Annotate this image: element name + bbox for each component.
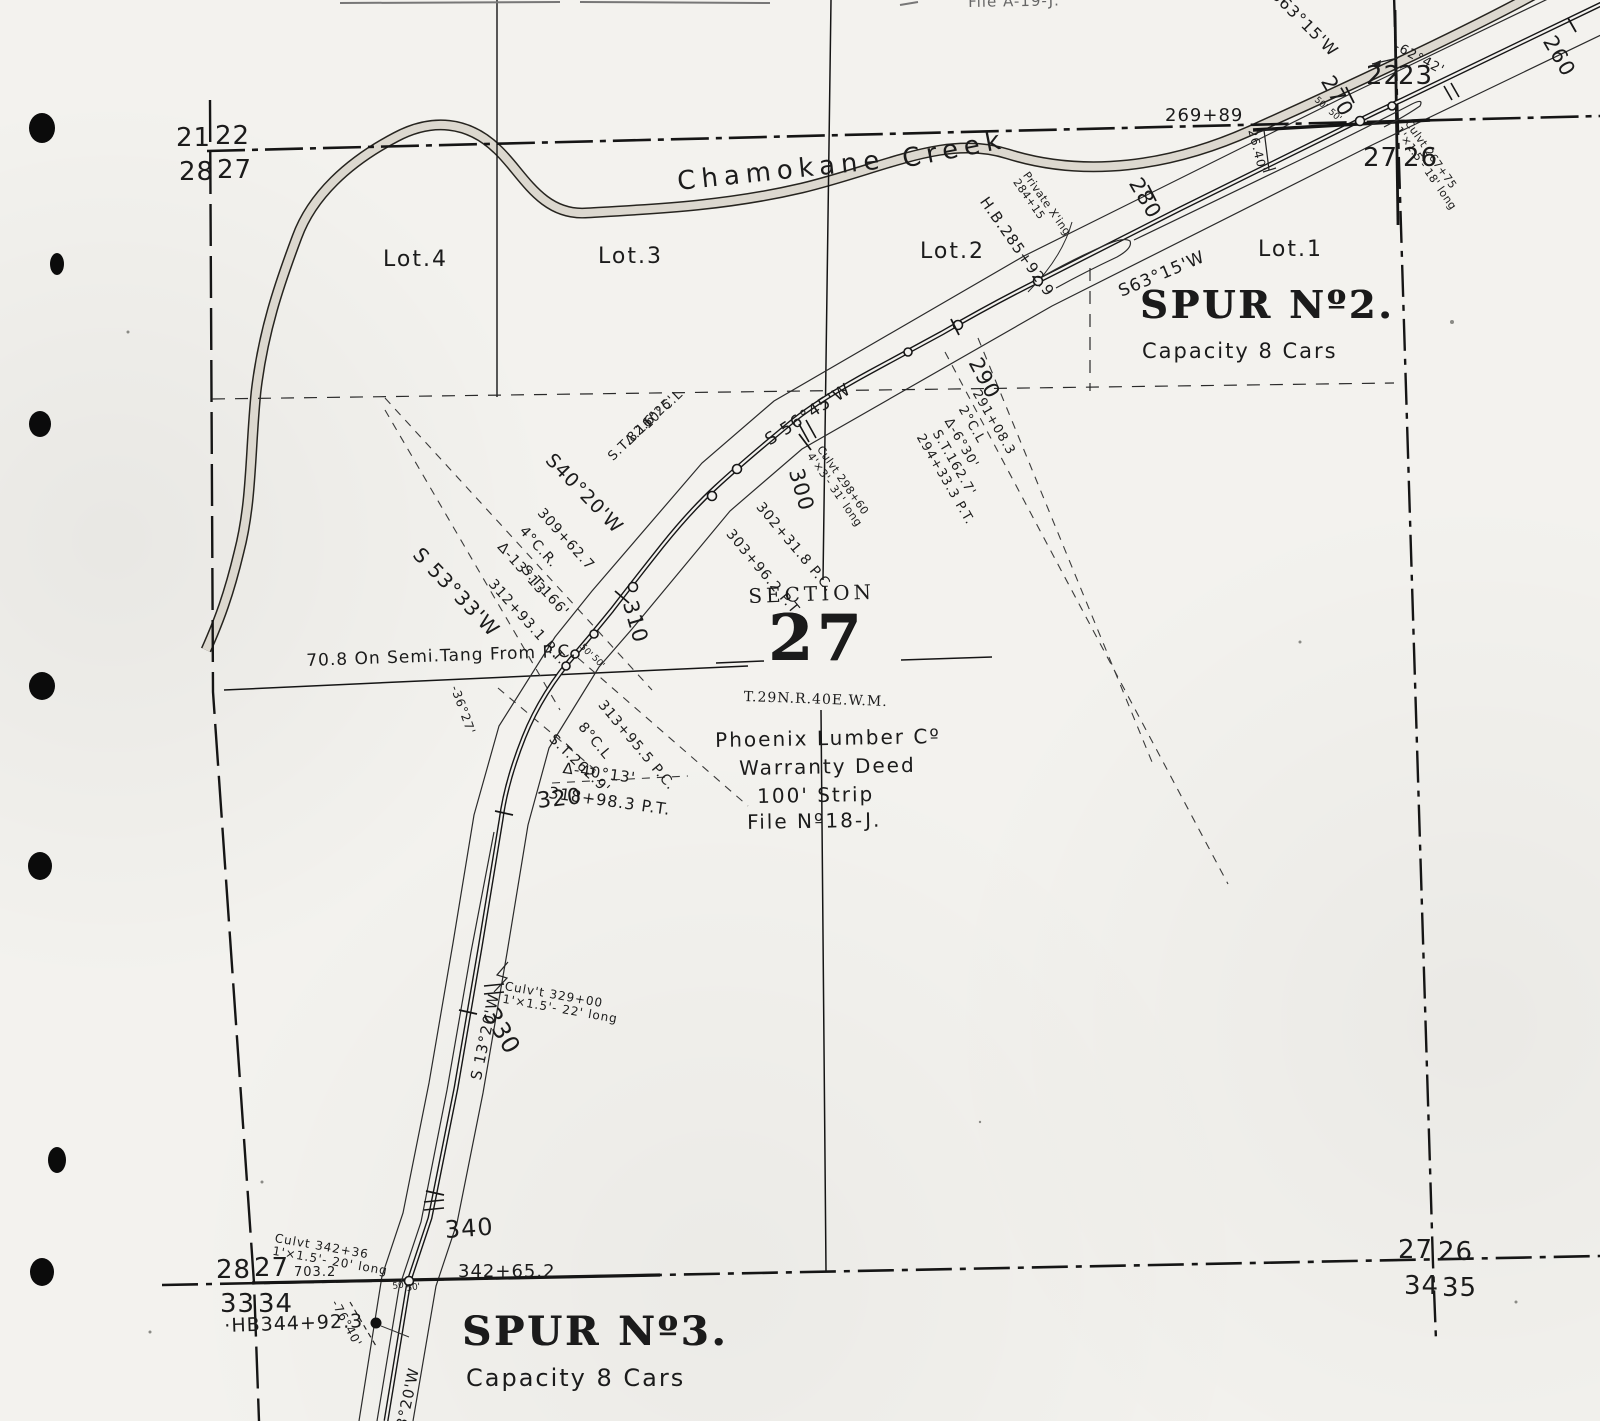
spur3-capacity: Capacity 8 Cars bbox=[466, 1366, 685, 1392]
corner-nw-22: 22 bbox=[215, 122, 250, 150]
station-269-89: 269+89 bbox=[1165, 106, 1243, 125]
deed-instrument: Warranty Deed bbox=[739, 755, 916, 780]
deed-owner: Phoenix Lumber Cº bbox=[715, 726, 941, 752]
section-lines bbox=[162, 0, 1600, 1421]
corner-se-27: 27 bbox=[1398, 1236, 1433, 1264]
switch-points bbox=[405, 102, 1397, 1286]
spur3-title: SPUR Nº3. bbox=[462, 1310, 728, 1353]
deed-file: File Nº18-J. bbox=[747, 810, 882, 834]
station-342-65: 342+65.2 bbox=[458, 1262, 556, 1281]
headblock-344-note: ·HB344+92.3 bbox=[224, 1311, 363, 1336]
deed-strip: 100' Strip bbox=[757, 784, 874, 808]
corner-sw-28: 28 bbox=[216, 1256, 251, 1284]
lot-1-label: Lot.1 bbox=[1258, 238, 1323, 262]
punch-holes bbox=[28, 113, 66, 1286]
map-drawing bbox=[0, 0, 1600, 1421]
corner-nw-27: 27 bbox=[217, 156, 252, 184]
corner-se-26: 26 bbox=[1438, 1238, 1473, 1266]
corner-se-34: 34 bbox=[1404, 1272, 1439, 1300]
railroad-plat-map: File A-19-J. 21 22 28 27 22 23 27 26 28 … bbox=[0, 0, 1600, 1421]
corner-ne-22: 22 bbox=[1366, 62, 1401, 90]
spur2-capacity: Capacity 8 Cars bbox=[1142, 340, 1338, 363]
lot-4-label: Lot.4 bbox=[383, 248, 448, 272]
row-50ft-mark: 50' bbox=[406, 1283, 421, 1295]
corner-nw-28: 28 bbox=[179, 158, 214, 186]
section-number: 27 bbox=[768, 604, 865, 673]
monument-dot bbox=[371, 1318, 382, 1329]
lot-3-label: Lot.3 bbox=[598, 245, 663, 269]
distance-703: 703.2 bbox=[294, 1266, 336, 1280]
lot-2-label: Lot.2 bbox=[920, 240, 985, 264]
corner-nw-21: 21 bbox=[176, 124, 211, 152]
file-note-fragment: File A-19-J. bbox=[968, 0, 1060, 10]
corner-ne-27: 27 bbox=[1363, 144, 1398, 172]
monument-leader bbox=[381, 1326, 409, 1337]
right-of-way-lines bbox=[359, 0, 1600, 1421]
row-50ft-mark: 50' bbox=[392, 1281, 407, 1293]
station-340: 340 bbox=[444, 1215, 495, 1244]
spur2-title: SPUR Nº2. bbox=[1140, 284, 1394, 325]
corner-se-35: 35 bbox=[1442, 1274, 1477, 1302]
